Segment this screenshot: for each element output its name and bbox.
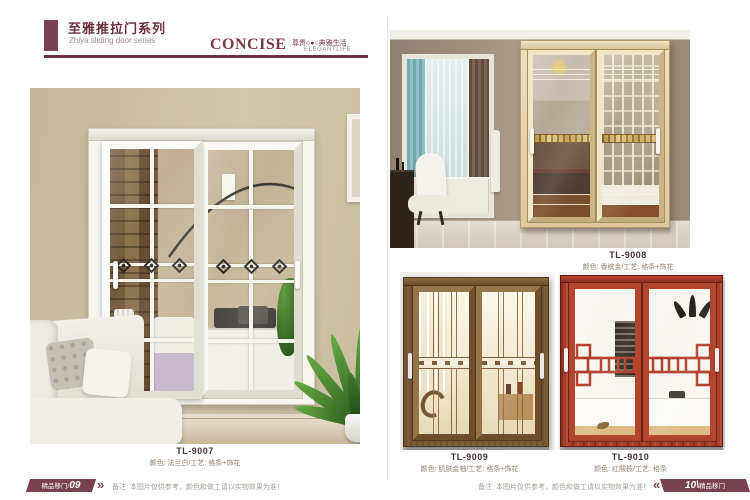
white-vase	[491, 130, 500, 192]
wood-floor-inside	[602, 205, 659, 217]
plant-silhouette	[678, 291, 708, 317]
page-marker-right-content: 10\精品移门	[662, 479, 748, 492]
carved-panel-dark	[615, 321, 635, 377]
foreground-plant	[255, 300, 360, 444]
door-top-track	[404, 278, 548, 286]
vase	[517, 382, 523, 394]
door-panel-right	[597, 50, 664, 222]
page-marker-left-content: 精品移门/09	[28, 479, 94, 492]
product-caption-tl9010: TL-9010 颜色: 红酸枝/工艺: 格条	[552, 452, 709, 474]
door-top-track	[561, 276, 722, 283]
middle-band	[482, 357, 535, 369]
product-desc: 颜色: 法兰白/工艺: 格条+饰花	[30, 458, 360, 468]
product-desc: 颜色: 香槟金/工艺: 格条+饰花	[540, 262, 716, 272]
grid-vertical-bar	[249, 150, 253, 390]
grid-vlines	[451, 292, 457, 434]
product-desc: 颜色: 肌肤金柚/工艺: 格条+饰花	[392, 464, 547, 474]
door-panel-left	[569, 283, 641, 441]
catalog-page: 至雅推拉门系列 Zhiya sliding door series CONCIS…	[0, 0, 750, 500]
product-model: TL-9010	[552, 452, 709, 462]
band-dashes	[482, 361, 535, 365]
deco-line	[602, 79, 659, 80]
diamond-ornament	[216, 259, 232, 275]
window-blinds	[419, 292, 447, 391]
plant-leaf	[671, 300, 686, 319]
footer-note-left: 备注: 本图片仅供参考，颜色和做工请以实物效果为准！	[112, 482, 284, 492]
page-gutter-line	[387, 18, 388, 480]
product-model: TL-9009	[392, 452, 547, 462]
lattice-pattern	[575, 343, 635, 387]
band-dashes	[419, 361, 469, 365]
page-title: 至雅推拉门系列	[68, 18, 166, 37]
door-handle	[715, 348, 719, 372]
door-panel-left	[528, 50, 595, 222]
grid-vlines	[433, 292, 439, 434]
gold-band	[602, 134, 659, 143]
foreground-sofa	[30, 294, 184, 444]
page-number: 10\	[685, 480, 699, 491]
diamond-ornament	[116, 258, 132, 274]
middle-band	[419, 357, 469, 369]
deco-line	[602, 69, 659, 70]
brand-tagline-en: ELEGANTLIFE	[304, 47, 351, 53]
door-glass	[482, 292, 535, 434]
product-model: TL-9008	[540, 250, 716, 260]
door-top-track	[89, 129, 314, 141]
lattice-pattern	[649, 343, 710, 387]
deco-line	[533, 204, 590, 205]
deco-line	[602, 74, 659, 75]
door-panel-right	[476, 286, 541, 440]
band-rail	[110, 279, 194, 282]
door-handle	[295, 261, 300, 289]
rug	[419, 421, 469, 434]
curtain-brown	[469, 59, 489, 177]
product-photo-tl9009	[400, 272, 555, 450]
plant-leaf	[698, 300, 710, 319]
sofa-pillow-white	[82, 348, 133, 399]
chair-silhouette	[419, 387, 449, 422]
product-caption-tl9009: TL-9009 颜色: 肌肤金柚/工艺: 格条+饰花	[392, 452, 547, 474]
band-rail	[208, 280, 294, 283]
door-glass	[419, 292, 469, 434]
door-top-track	[521, 41, 669, 50]
wood-floor-inside	[649, 426, 710, 435]
sliding-door-rosewood	[560, 275, 723, 447]
door-handle	[540, 353, 544, 379]
product-photo-tl9007	[30, 88, 360, 444]
white-bed	[649, 398, 710, 426]
wood-floor-inside	[575, 426, 635, 435]
grid-horizontal-bar	[110, 204, 194, 208]
door-panel-left	[413, 286, 475, 440]
page-number: 09	[69, 480, 80, 491]
door-handle	[113, 261, 118, 289]
header-accent-bar	[44, 20, 58, 51]
deco-line	[533, 74, 590, 75]
grid-vlines	[498, 292, 504, 434]
brand-logo: CONCISE	[210, 36, 286, 54]
diamond-ornament	[144, 258, 160, 274]
plant-leaf	[689, 295, 696, 317]
page-marker-left: 精品移门/09	[26, 479, 96, 492]
door-glass	[575, 289, 635, 435]
door-handle	[408, 353, 412, 379]
ceiling	[390, 30, 690, 40]
product-model: TL-9007	[30, 446, 360, 456]
fallen-leaf	[597, 422, 609, 429]
rug	[482, 421, 535, 434]
footer-note-right: 备注: 本图片仅供参考，颜色和做工请以实物效果为准！	[478, 482, 650, 492]
product-caption-tl9008: TL-9008 颜色: 香槟金/工艺: 格条+饰花	[540, 250, 716, 272]
product-photo-tl9010	[558, 272, 725, 450]
white-cabinet	[575, 398, 635, 426]
series-label: 精品移门	[699, 480, 725, 490]
door-glass	[649, 289, 710, 435]
wall-lamp	[222, 174, 235, 200]
page-marker-right: 10\精品移门	[660, 479, 750, 492]
series-label: 精品移门/	[42, 480, 70, 490]
page-subtitle: Zhiya sliding door series	[69, 36, 155, 45]
vase	[506, 384, 511, 394]
deco-line	[533, 194, 590, 195]
chevron-right-icon: »	[97, 477, 104, 492]
door-panel-right	[643, 283, 716, 441]
door-handle	[530, 128, 534, 154]
diamond-ornament	[172, 258, 188, 274]
desk-bottle	[402, 162, 404, 170]
diamond-ornament	[272, 259, 288, 275]
deco-line	[602, 194, 659, 195]
chandelier	[549, 59, 569, 77]
cabinet-white	[602, 185, 659, 205]
picture-frame	[347, 114, 360, 202]
deco-line	[602, 204, 659, 205]
door-handle	[564, 348, 568, 372]
deco-line	[533, 79, 590, 80]
bed-dark	[533, 169, 590, 195]
sliding-door-walnut	[403, 277, 549, 447]
chair-white	[408, 153, 454, 225]
product-photo-tl9008	[390, 30, 690, 248]
chair-seat	[408, 195, 454, 213]
product-caption-tl9007: TL-9007 颜色: 法兰白/工艺: 格条+饰花	[30, 446, 360, 468]
door-floor-shadow	[560, 447, 723, 450]
deco-line	[533, 69, 590, 70]
door-floor-shadow	[520, 228, 670, 234]
desk-bottle	[396, 158, 399, 170]
header-rule	[44, 55, 368, 58]
band-rail	[110, 263, 194, 266]
door-glass	[533, 55, 590, 217]
door-handle	[656, 128, 660, 154]
grid-vlines	[517, 292, 523, 434]
grid-horizontal-bar	[208, 205, 294, 209]
sliding-door-champagne	[520, 40, 670, 228]
door-floor-shadow	[403, 447, 549, 450]
band-rail	[208, 264, 294, 267]
accent-pillow	[669, 391, 685, 401]
plant-pot	[345, 414, 360, 442]
cabinet	[499, 394, 533, 420]
product-desc: 颜色: 红酸枝/工艺: 格条	[552, 464, 709, 474]
sofa-seat	[30, 398, 182, 444]
diamond-ornament	[244, 259, 260, 275]
door-glass	[602, 55, 659, 217]
gold-band	[533, 134, 590, 143]
